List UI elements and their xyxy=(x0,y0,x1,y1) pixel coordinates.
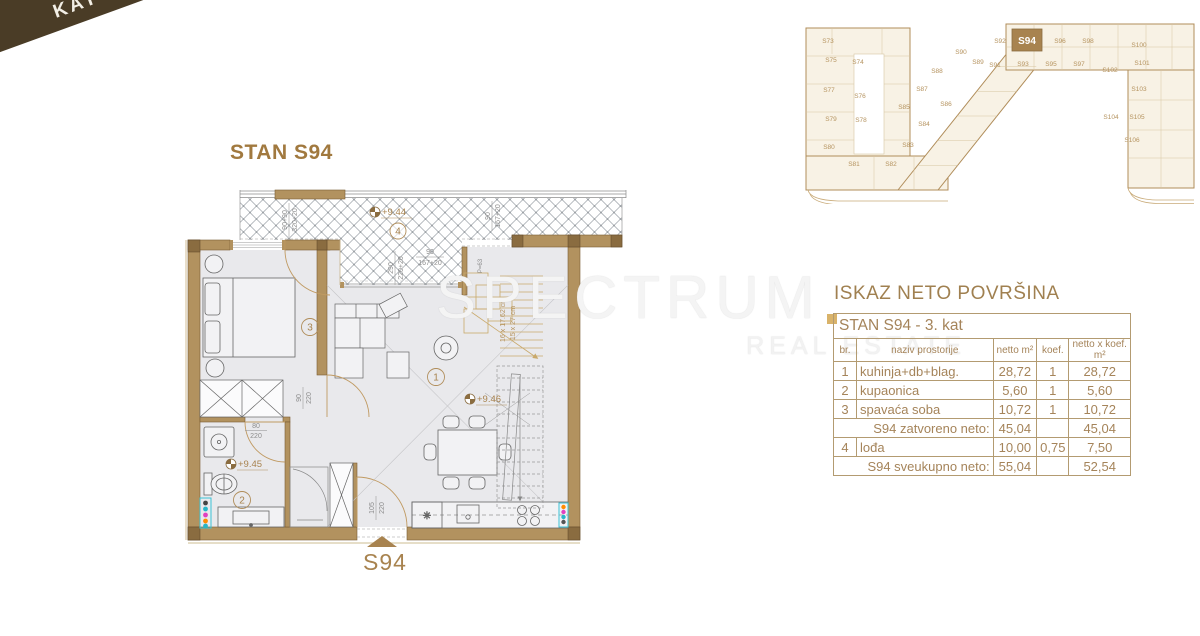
table-cell-nxk: 28,72 xyxy=(1069,362,1131,381)
svg-text:S92: S92 xyxy=(994,38,1006,45)
toilet xyxy=(204,473,237,495)
table-row: S94 sveukupno neto:55,0452,54 xyxy=(834,457,1131,476)
fridge-icon: ✳ xyxy=(423,511,431,522)
svg-text:90: 90 xyxy=(296,394,303,402)
svg-text:S97: S97 xyxy=(1073,61,1085,68)
table-cell-nxk: 10,72 xyxy=(1069,400,1131,419)
table-cell-netto: 5,60 xyxy=(993,381,1037,400)
svg-text:290: 290 xyxy=(388,262,395,274)
svg-text:105: 105 xyxy=(369,502,376,514)
svg-text:+9.45: +9.45 xyxy=(238,459,262,470)
svg-text:220: 220 xyxy=(250,433,262,440)
table-cell-netto: 45,04 xyxy=(993,419,1037,438)
svg-text:S103: S103 xyxy=(1131,86,1147,93)
table-cell-naziv: spavaća soba xyxy=(857,400,994,419)
svg-text:S78: S78 xyxy=(855,117,867,124)
nightstand xyxy=(206,359,224,377)
entry-threshold xyxy=(357,529,407,537)
area-table: STAN S94 - 3. kat br. naziv prostorije n… xyxy=(833,313,1131,476)
table-cell-naziv: S94 zatvoreno neto: xyxy=(834,419,994,438)
corner-ribbon: KAT 3 xyxy=(0,0,190,80)
hall-wardrobe xyxy=(330,463,353,527)
ribbon-label: KAT 3 xyxy=(50,0,122,24)
level-living: +9.46 xyxy=(465,394,507,405)
table-cell-netto: 55,04 xyxy=(993,457,1037,476)
svg-text:90: 90 xyxy=(426,249,434,256)
table-cell-naziv: lođa xyxy=(857,438,994,457)
svg-text:S93: S93 xyxy=(1017,61,1029,68)
svg-text:S84: S84 xyxy=(918,121,930,128)
svg-text:80: 80 xyxy=(252,423,260,430)
bed xyxy=(203,278,295,357)
table-row: S94 zatvoreno neto:45,0445,04 xyxy=(834,419,1131,438)
table-cell-naziv: S94 sveukupno neto: xyxy=(834,457,994,476)
table-cell-koef: 1 xyxy=(1037,400,1069,419)
table-cell-koef: 1 xyxy=(1037,381,1069,400)
svg-text:S83: S83 xyxy=(902,142,914,149)
svg-text:S74: S74 xyxy=(852,59,864,66)
col-nxk: netto x koef. m² xyxy=(1069,339,1131,362)
col-br: br. xyxy=(834,339,857,362)
svg-text:S96: S96 xyxy=(1054,38,1066,45)
svg-text:S88: S88 xyxy=(931,68,943,75)
svg-text:S73: S73 xyxy=(822,38,834,45)
svg-text:4: 4 xyxy=(395,227,401,238)
svg-text:+9.46: +9.46 xyxy=(477,394,501,405)
page: { "ribbon": {"label": "KAT 3"}, "page": … xyxy=(0,0,1200,636)
svg-text:S81: S81 xyxy=(848,161,860,168)
table-cell-nxk: 5,60 xyxy=(1069,381,1131,400)
wardrobe xyxy=(200,380,283,417)
svg-text:S105: S105 xyxy=(1129,114,1145,121)
ribbon-band: KAT 3 xyxy=(0,0,190,60)
svg-text:S106: S106 xyxy=(1124,137,1140,144)
table-cell-br: 4 xyxy=(834,438,857,457)
table-cell-nxk: 52,54 xyxy=(1069,457,1131,476)
svg-text:S91: S91 xyxy=(989,62,1001,69)
table-row: 1kuhinja+db+blag.28,72128,72 xyxy=(834,362,1131,381)
courtyard xyxy=(854,54,884,154)
svg-text:320+20: 320+20 xyxy=(292,208,299,232)
svg-text:S90: S90 xyxy=(955,49,967,56)
room-label-loggia: 4 xyxy=(390,223,406,239)
svg-text:1: 1 xyxy=(433,373,439,384)
svg-text:S100: S100 xyxy=(1131,42,1147,49)
table-row: 3spavaća soba10,72110,72 xyxy=(834,400,1131,419)
svg-text:S75: S75 xyxy=(825,57,837,64)
railing-wall xyxy=(275,190,345,199)
svg-text:S101: S101 xyxy=(1134,60,1150,67)
svg-text:S85: S85 xyxy=(898,104,910,111)
svg-text:90: 90 xyxy=(485,212,492,220)
table-cell-nxk: 7,50 xyxy=(1069,438,1131,457)
svg-text:S82: S82 xyxy=(885,161,897,168)
svg-text:220: 220 xyxy=(306,392,313,404)
table-subtitle-row: STAN S94 - 3. kat xyxy=(834,314,1131,339)
svg-text:220: 220 xyxy=(379,502,386,514)
svg-text:S102: S102 xyxy=(1102,67,1118,74)
svg-text:220+20: 220+20 xyxy=(398,256,405,280)
kitchen-counter: ✳ xyxy=(412,502,568,528)
svg-text:S87: S87 xyxy=(916,86,928,93)
svg-text:167+20: 167+20 xyxy=(418,260,442,267)
table-cell-koef: 0,75 xyxy=(1037,438,1069,457)
site-plan: S94 S73 S74 S75 S76 S77 S78 S79 S80 S81 … xyxy=(798,12,1198,204)
stair-note-1: 16 x 17.62 cm xyxy=(500,298,507,342)
svg-text:S79: S79 xyxy=(825,116,837,123)
svg-text:167+20: 167+20 xyxy=(495,204,502,228)
washing-machine xyxy=(204,427,234,457)
svg-text:S95: S95 xyxy=(1045,61,1057,68)
svg-text:S76: S76 xyxy=(854,93,866,100)
table-body: 1kuhinja+db+blag.28,72128,722kupaonica5,… xyxy=(834,362,1131,476)
svg-text:S86: S86 xyxy=(940,101,952,108)
svg-text:S104: S104 xyxy=(1103,114,1119,121)
table-cell-br: 3 xyxy=(834,400,857,419)
dim-p: P=63 xyxy=(478,258,484,273)
area-panel: ISKAZ NETO POVRŠINA STAN S94 - 3. kat br… xyxy=(833,283,1133,476)
svg-text:S89: S89 xyxy=(972,59,984,66)
unit-marker: S94 xyxy=(363,536,407,575)
table-cell-netto: 10,00 xyxy=(993,438,1037,457)
table-cell-koef xyxy=(1037,419,1069,438)
stair-note-2: 15 x 27 cm xyxy=(510,306,517,340)
page-title: STAN S94 xyxy=(230,141,333,165)
svg-text:S80: S80 xyxy=(823,144,835,151)
table-cell-naziv: kupaonica xyxy=(857,381,994,400)
table-cell-naziv: kuhinja+db+blag. xyxy=(857,362,994,381)
svg-text:2: 2 xyxy=(239,496,245,507)
svg-text:+9.44: +9.44 xyxy=(382,207,406,218)
table-row: 2kupaonica5,6015,60 xyxy=(834,381,1131,400)
table-cell-koef xyxy=(1037,457,1069,476)
nightstand xyxy=(205,255,223,273)
svg-text:S94: S94 xyxy=(1018,36,1036,47)
col-koef: koef. xyxy=(1037,339,1069,362)
area-panel-title: ISKAZ NETO POVRŠINA xyxy=(834,283,1133,305)
table-cell-br: 1 xyxy=(834,362,857,381)
table-cell-netto: 10,72 xyxy=(993,400,1037,419)
table-cell-netto: 28,72 xyxy=(993,362,1037,381)
table-subtitle: STAN S94 - 3. kat xyxy=(834,314,1131,339)
vanity-sink xyxy=(218,507,284,527)
bedroom-window xyxy=(230,240,285,250)
svg-text:S94: S94 xyxy=(363,549,407,575)
svg-text:3: 3 xyxy=(307,323,313,334)
floor-plan: ✳ xyxy=(185,180,635,590)
table-cell-br: 2 xyxy=(834,381,857,400)
svg-text:S98: S98 xyxy=(1082,38,1094,45)
level-bath: +9.45 xyxy=(226,459,268,470)
round-chair xyxy=(434,336,458,360)
level-loggia: +9.44 xyxy=(370,207,412,218)
unit-s94-highlight: S94 xyxy=(1012,29,1042,51)
svg-text:S77: S77 xyxy=(823,87,835,94)
table-row: 4lođa10,000,757,50 xyxy=(834,438,1131,457)
table-cell-nxk: 45,04 xyxy=(1069,419,1131,438)
table-header-row: br. naziv prostorije netto m² koef. nett… xyxy=(834,339,1131,362)
table-cell-koef: 1 xyxy=(1037,362,1069,381)
col-netto: netto m² xyxy=(993,339,1037,362)
col-naziv: naziv prostorije xyxy=(857,339,994,362)
svg-text:90+90: 90+90 xyxy=(282,210,289,230)
